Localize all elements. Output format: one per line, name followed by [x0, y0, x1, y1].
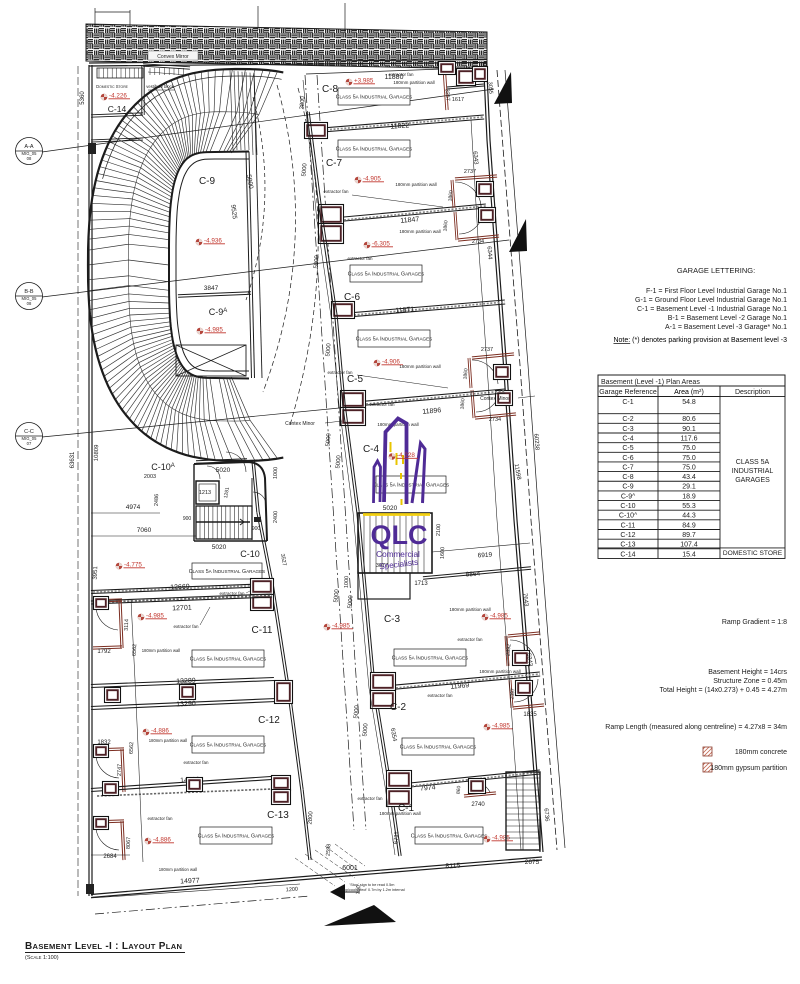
svg-text:extractor fan: extractor fan [147, 816, 173, 821]
svg-text:A-A: A-A [24, 144, 34, 150]
svg-text:5000: 5000 [333, 588, 340, 602]
svg-text:43.4: 43.4 [682, 474, 696, 481]
svg-text:15.4: 15.4 [682, 551, 696, 558]
svg-text:2598: 2598 [325, 844, 332, 857]
svg-text:C-3: C-3 [384, 614, 401, 625]
svg-text:5000: 5000 [325, 342, 332, 356]
svg-text:117.6: 117.6 [681, 436, 698, 443]
svg-text:C-2: C-2 [390, 702, 407, 713]
svg-text:B-B: B-B [24, 289, 34, 295]
svg-text:2737: 2737 [481, 347, 493, 353]
svg-text:7974: 7974 [420, 784, 436, 792]
svg-text:860: 860 [456, 785, 463, 794]
svg-text:2100: 2100 [436, 524, 442, 536]
svg-text:12669: 12669 [170, 584, 190, 592]
svg-text:C-5: C-5 [622, 445, 633, 452]
svg-text:extractor fan: extractor fan [323, 189, 349, 194]
svg-text:Contex Minor: Contex Minor [285, 421, 315, 427]
svg-text:5000: 5000 [347, 594, 354, 608]
svg-text:75.0: 75.0 [682, 455, 696, 462]
svg-text:7060: 7060 [137, 527, 152, 534]
svg-text:5000: 5000 [313, 254, 320, 268]
svg-text:1792: 1792 [97, 649, 111, 655]
svg-text:08: 08 [27, 301, 32, 306]
svg-text:54.8: 54.8 [682, 399, 696, 406]
svg-text:C-12: C-12 [620, 532, 635, 539]
svg-text:2400: 2400 [273, 511, 279, 523]
svg-text:C-8: C-8 [322, 84, 339, 95]
svg-text:08: 08 [27, 156, 32, 161]
svg-text:8115: 8115 [445, 863, 461, 871]
svg-text:Contex Minor: Contex Minor [480, 396, 510, 402]
svg-text:2486: 2486 [154, 494, 160, 506]
svg-text:55.3: 55.3 [682, 503, 696, 510]
svg-text:1860: 1860 [463, 368, 470, 380]
svg-text:5020: 5020 [383, 505, 398, 512]
svg-text:63631: 63631 [70, 451, 76, 468]
svg-text:Total Height = (14x0.273) + 0.: Total Height = (14x0.273) + 0.45 = 4.27m [660, 687, 788, 694]
svg-text:Convex Mirror: Convex Mirror [157, 54, 189, 60]
svg-text:2003: 2003 [144, 474, 156, 480]
svg-text:180mm partition wall: 180mm partition wall [142, 648, 180, 653]
svg-text:C-14: C-14 [620, 551, 635, 558]
svg-text:C-C: C-C [24, 429, 34, 435]
svg-text:F-1 = First Floor Level Indust: F-1 = First Floor Level Industrial Garag… [646, 288, 787, 295]
svg-text:1860: 1860 [460, 398, 467, 410]
svg-text:5000: 5000 [301, 162, 308, 176]
svg-text:180mm partition wall: 180mm partition wall [449, 607, 490, 612]
svg-text:C-11: C-11 [621, 522, 636, 529]
svg-text:6344: 6344 [485, 246, 492, 260]
svg-text:44.3: 44.3 [682, 513, 696, 520]
svg-text:18.9: 18.9 [682, 493, 696, 500]
svg-text:C-10: C-10 [620, 503, 635, 510]
svg-text:C-4: C-4 [622, 436, 633, 443]
svg-text:180mm partition wall: 180mm partition wall [149, 738, 187, 743]
svg-text:C-1 = Basement Level -1 Indust: C-1 = Basement Level -1 Industrial Garag… [637, 306, 787, 313]
svg-text:B-1 = Basement Level -2 Garage: B-1 = Basement Level -2 Garage No.1 [668, 315, 787, 322]
svg-text:3114: 3114 [124, 619, 130, 631]
svg-text:10809: 10809 [94, 444, 101, 462]
svg-text:'Stop/cool effect' 0.7m by 1.2: 'Stop/cool effect' 0.7m by 1.2m internal [339, 888, 404, 892]
svg-text:5020: 5020 [212, 544, 227, 551]
svg-text:5020: 5020 [216, 467, 231, 474]
svg-text:3257: 3257 [443, 89, 450, 102]
svg-text:C-2: C-2 [622, 416, 633, 423]
svg-text:1000: 1000 [344, 576, 350, 588]
svg-text:CLASS 5A: CLASS 5A [736, 459, 770, 466]
svg-text:C-13: C-13 [267, 810, 289, 821]
svg-text:2747: 2747 [117, 764, 123, 776]
svg-text:75.0: 75.0 [682, 464, 696, 471]
svg-text:2675: 2675 [525, 859, 540, 866]
svg-text:6343: 6343 [471, 151, 478, 165]
svg-text:900: 900 [183, 516, 192, 522]
svg-text:84.9: 84.9 [682, 522, 696, 529]
svg-text:QLC: QLC [371, 520, 428, 550]
svg-text:1860: 1860 [443, 220, 450, 232]
svg-text:G-1 = Ground Floor Level Indus: G-1 = Ground Floor Level Industrial Gara… [635, 297, 787, 304]
svg-text:1200: 1200 [286, 887, 299, 894]
svg-text:107.4: 107.4 [680, 542, 698, 549]
svg-text:extractor fan: extractor fan [173, 624, 199, 629]
svg-text:Basement Height = 14crs: Basement Height = 14crs [708, 669, 787, 676]
svg-text:900: 900 [252, 526, 261, 532]
svg-text:C-9: C-9 [622, 484, 633, 491]
svg-text:11871: 11871 [395, 306, 415, 314]
svg-text:1713: 1713 [414, 581, 428, 587]
svg-text:3847: 3847 [204, 285, 219, 292]
svg-text:4974: 4974 [126, 504, 141, 511]
svg-text:extractor fan: extractor fan [427, 693, 453, 698]
svg-text:3951: 3951 [93, 566, 99, 580]
svg-text:extractor fan: extractor fan [357, 796, 383, 801]
svg-text:1600: 1600 [440, 547, 446, 559]
svg-text:180mm partition wall: 180mm partition wall [479, 669, 520, 674]
svg-text:Basement (Level -1) Plan Areas: Basement (Level -1) Plan Areas [601, 379, 700, 386]
svg-text:Ramp Length (measured along ce: Ramp Length (measured along centreline) … [605, 724, 787, 731]
svg-text:INDUSTRIAL: INDUSTRIAL [732, 468, 774, 475]
svg-text:DOMESTIC STORE: DOMESTIC STORE [723, 550, 783, 557]
svg-text:75.0: 75.0 [682, 445, 696, 452]
svg-text:C-6: C-6 [622, 455, 633, 462]
svg-text:1617: 1617 [452, 97, 464, 103]
svg-text:90.1: 90.1 [682, 426, 696, 433]
svg-text:6562: 6562 [129, 742, 135, 754]
svg-text:C-11: C-11 [252, 625, 273, 636]
svg-text:'Stop' sign to be read 0.5m: 'Stop' sign to be read 0.5m [350, 883, 395, 887]
svg-text:8067: 8067 [126, 837, 132, 849]
svg-text:1213: 1213 [199, 490, 211, 496]
svg-text:8864: 8864 [466, 571, 481, 579]
svg-text:180mm partition wall: 180mm partition wall [395, 182, 436, 187]
svg-text:5000: 5000 [362, 722, 369, 736]
svg-text:BASEMENT LEVEL -I : LAYOUT PLA: BASEMENT LEVEL -I : LAYOUT PLAN [25, 941, 182, 952]
svg-text:GARAGES: GARAGES [735, 477, 770, 484]
svg-text:extractor fan: extractor fan [369, 402, 395, 407]
svg-text:1860: 1860 [448, 190, 455, 202]
svg-text:180mm partition wall: 180mm partition wall [159, 867, 197, 872]
svg-text:180mm partition wall: 180mm partition wall [399, 364, 440, 369]
svg-text:C-8: C-8 [622, 474, 633, 481]
svg-text:extractor fan: extractor fan [388, 72, 414, 77]
svg-text:13290: 13290 [176, 701, 196, 709]
svg-text:180mm concrete: 180mm concrete [735, 749, 787, 756]
svg-text:11822: 11822 [390, 122, 410, 130]
svg-text:C-3: C-3 [622, 426, 633, 433]
svg-text:C-13: C-13 [620, 542, 635, 549]
svg-text:C-7: C-7 [622, 464, 633, 471]
svg-text:5000: 5000 [335, 454, 342, 468]
svg-text:(SCALE 1:100): (SCALE 1:100) [25, 955, 59, 961]
svg-text:180mm partition wall: 180mm partition wall [399, 229, 440, 234]
svg-text:5000: 5000 [353, 704, 360, 718]
svg-text:extractor fan: extractor fan [347, 256, 373, 261]
svg-text:3055: 3055 [486, 82, 493, 95]
svg-text:2740: 2740 [471, 802, 485, 808]
svg-text:Note: (*) denotes parking prov: Note: (*) denotes parking provision at B… [613, 337, 787, 344]
svg-text:1835: 1835 [523, 712, 537, 718]
svg-text:180mm gypsum partition: 180mm gypsum partition [710, 765, 787, 772]
svg-text:1000: 1000 [273, 467, 279, 479]
svg-text:180mm partition wall: 180mm partition wall [379, 811, 420, 816]
svg-text:12701: 12701 [172, 605, 192, 613]
svg-text:07: 07 [27, 441, 32, 446]
svg-text:6711: 6711 [393, 831, 400, 845]
svg-text:GARAGE LETTERING:: GARAGE LETTERING: [677, 266, 755, 275]
svg-text:14977: 14977 [180, 877, 200, 885]
svg-text:Description: Description [735, 389, 770, 396]
svg-text:vestibule block: vestibule block [146, 84, 174, 89]
svg-text:A-1 = Basement Level -3 Garage: A-1 = Basement Level -3 Garage* No.1 [665, 324, 787, 331]
svg-text:89.7: 89.7 [682, 532, 696, 539]
svg-text:Ramp Gradient = 1:8: Ramp Gradient = 1:8 [722, 619, 787, 626]
svg-text:80.6: 80.6 [682, 416, 696, 423]
svg-text:C-9: C-9 [199, 176, 216, 187]
svg-text:5000: 5000 [325, 432, 332, 446]
svg-text:180mm partition wall: 180mm partition wall [393, 80, 434, 85]
svg-text:C-14: C-14 [108, 104, 127, 114]
svg-text:6919: 6919 [478, 552, 493, 560]
svg-text:1832: 1832 [97, 740, 111, 746]
svg-text:extractor fan: extractor fan [457, 637, 483, 642]
svg-text:C-1: C-1 [622, 399, 633, 406]
svg-text:5360: 5360 [80, 91, 86, 105]
svg-text:2800: 2800 [307, 810, 314, 824]
svg-text:180mm partition wall: 180mm partition wall [377, 422, 418, 427]
svg-text:29.1: 29.1 [682, 484, 696, 491]
svg-text:Garage Reference: Garage Reference [599, 389, 657, 396]
svg-text:6736: 6736 [542, 808, 549, 822]
svg-text:6562: 6562 [132, 644, 138, 656]
svg-text:C-12: C-12 [258, 715, 280, 726]
svg-text:C-4: C-4 [363, 444, 380, 455]
svg-text:DOMESTIC STORE: DOMESTIC STORE [96, 84, 129, 89]
svg-text:C-10: C-10 [240, 549, 260, 559]
svg-text:extractor fan: extractor fan [183, 760, 209, 765]
svg-text:C-7: C-7 [326, 158, 343, 169]
svg-text:Structure Zone = 0.45m: Structure Zone = 0.45m [713, 678, 787, 685]
